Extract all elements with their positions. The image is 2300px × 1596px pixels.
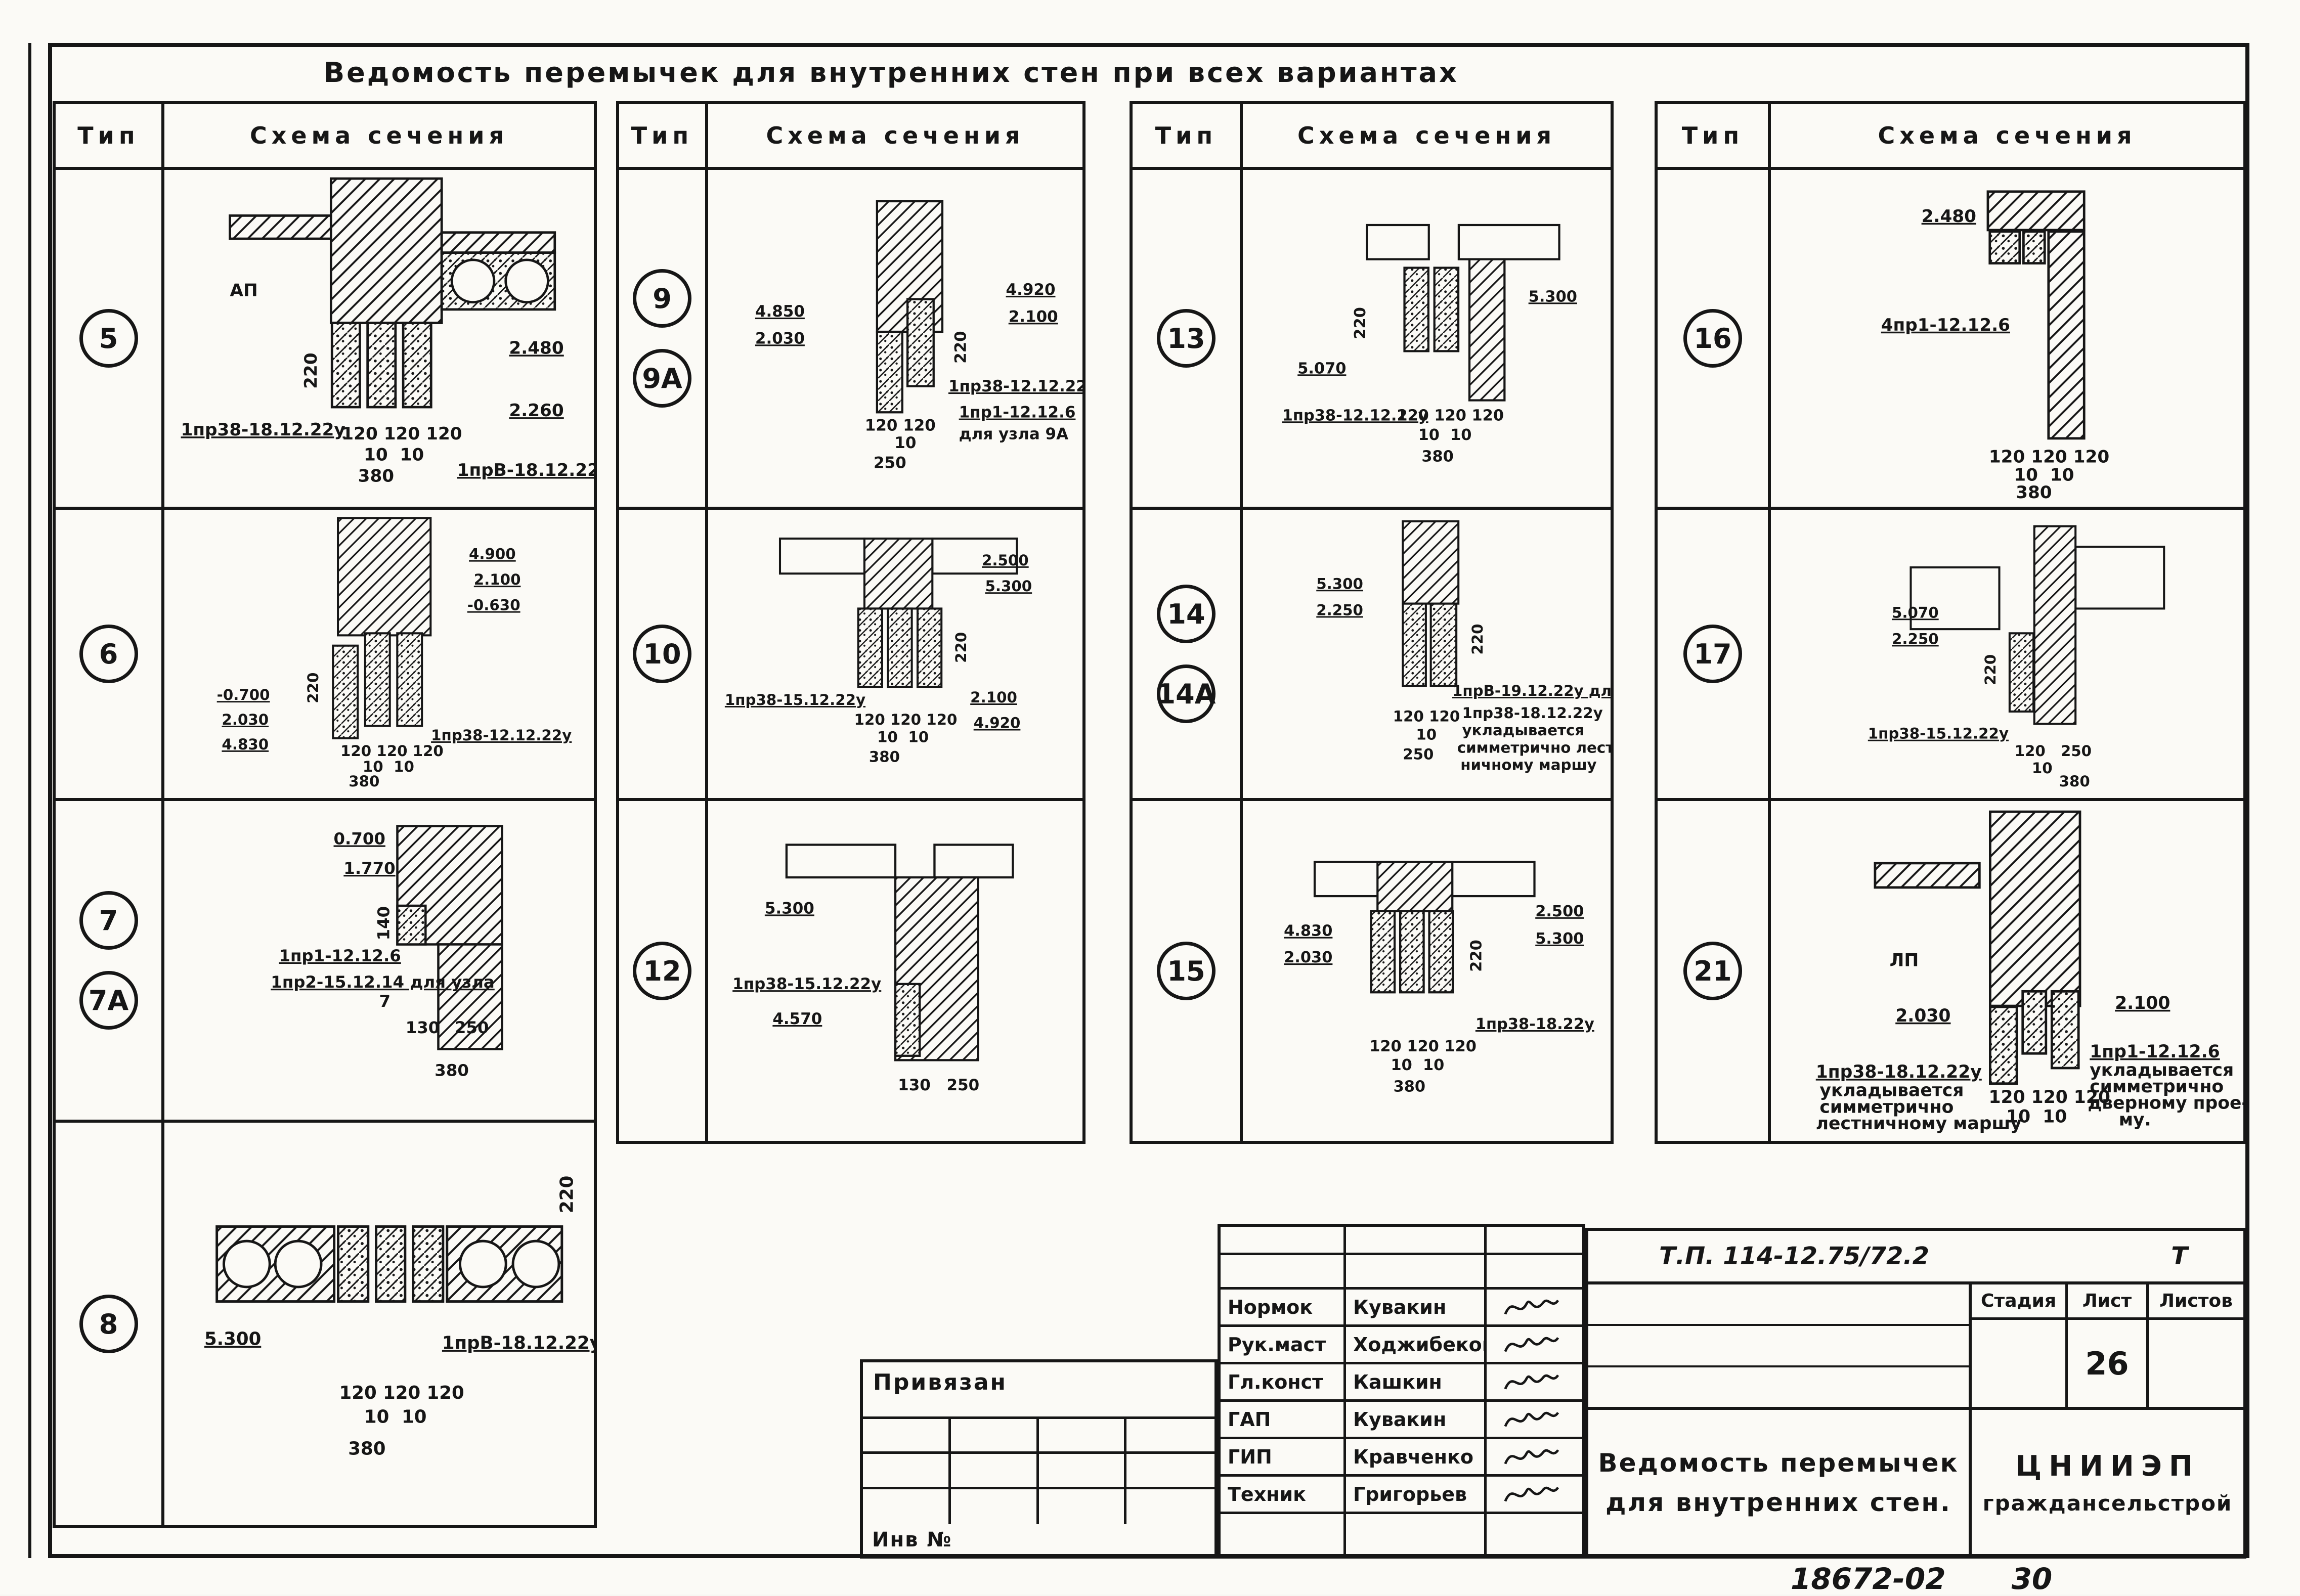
dimension-annotation: 10 (894, 434, 916, 452)
lintel-block (1400, 911, 1423, 993)
grid-cell (1126, 1454, 1214, 1489)
section-scheme-drawing: ЛП2.0302.1001пр38-18.12.22уукладываетсяс… (1771, 801, 2243, 1141)
dimension-annotation: 380 (869, 748, 900, 765)
dimension-annotation: 5.300 (1316, 575, 1363, 592)
dimension-annotation: 4пр1-12.12.6 (1881, 315, 2010, 335)
grid-cell (1126, 1419, 1214, 1454)
type-number-badge: 14 (1157, 585, 1216, 643)
dimension-annotation: ЛП (1890, 950, 1919, 970)
signature (1494, 1405, 1570, 1434)
wall-hatch (1377, 862, 1452, 911)
dimension-annotation: 10 10 (2006, 1107, 2067, 1127)
lintel-block (376, 1226, 405, 1301)
doc-title-line-2: для внутренних стен. (1605, 1488, 1951, 1517)
dimension-annotation: 220 (1982, 654, 1999, 685)
type-number-badge: 21 (1683, 942, 1742, 1000)
type-number-badge: 16 (1683, 309, 1742, 368)
dimension-annotation: 220 (1469, 624, 1486, 654)
dimension-annotation: 120 120 120 (340, 742, 444, 760)
dimension-annotation: 1.770 (343, 859, 395, 878)
grid-cell (863, 1454, 951, 1489)
dimension-annotation: 1пр1-12.12.6 (959, 404, 1076, 422)
schema-cell-6: 4.9002.100-0.6302201пр38-12.12.22у-0.700… (164, 510, 594, 801)
inventory-number-label: Инв № (863, 1524, 1214, 1556)
dimension-annotation: 250 (455, 1018, 489, 1037)
signature-cell (1487, 1402, 1582, 1439)
lintel-block (403, 323, 431, 408)
wall-hatch (1403, 521, 1458, 604)
wall-hatch (1469, 259, 1504, 401)
dimension-annotation: 220 (301, 352, 321, 389)
footnote-number: 18672-02 (1791, 1562, 1946, 1596)
type-number-badge: 7А (79, 971, 138, 1030)
dimension-annotation: 2.030 (1284, 949, 1332, 966)
dimension-annotation: 2.100 (2115, 993, 2170, 1013)
schema-cell-8: 2205.3001прВ-18.12.22у120 120 12010 1038… (164, 1123, 594, 1525)
type-number-badge: 13 (1157, 309, 1216, 368)
hollow-core-void (224, 1241, 270, 1287)
empty-row (1588, 1367, 1969, 1407)
tip-cell-17: 17 (1658, 510, 1771, 801)
section-scheme-drawing: 2205.3005.0701пр38-12.12.22у120 120 1201… (1243, 170, 1611, 507)
dimension-annotation: лестничному маршу (1816, 1114, 2022, 1134)
dimension-annotation: 4.850 (755, 302, 805, 321)
type-number-badge: 15 (1157, 942, 1216, 1000)
role-cell: Рук.маст (1221, 1327, 1346, 1364)
dimension-annotation: 10 10 (364, 1406, 427, 1427)
schema-cell-7: 0.7001.7701401пр1-12.12.61пр2-15.12.14 д… (164, 801, 594, 1123)
signature-cell (1487, 1327, 1582, 1364)
dimension-annotation: ничному маршу (1460, 757, 1596, 774)
empty-rows (1588, 1284, 1972, 1407)
dimension-annotation: 2.260 (509, 401, 563, 421)
dimension-annotation: 10 (1416, 726, 1437, 743)
empty-cell (1221, 1255, 1346, 1290)
type-number-badge: 9А (633, 349, 691, 408)
dimension-annotation: 2.030 (755, 329, 805, 347)
dimension-annotation: 5.300 (1529, 288, 1577, 305)
wall-hatch (338, 518, 430, 635)
lintel-block (895, 984, 920, 1056)
title-block: Т.П. 114-12.75/72.2 Т Стадия Лист Листов… (1585, 1228, 2246, 1559)
lintel-block (877, 332, 902, 412)
slab-outline (934, 845, 1013, 877)
type-number-badge: 10 (633, 625, 691, 683)
dimension-annotation: 220 (1352, 307, 1369, 339)
dimension-annotation: укладывается (1462, 722, 1585, 739)
tip-cell-12: 12 (619, 801, 708, 1141)
organization-line-1: ЦНИИЭП (2015, 1450, 2200, 1483)
dimension-annotation: 380 (435, 1061, 469, 1080)
dimension-annotation: 10 10 (1391, 1056, 1444, 1074)
header-schema: Схема сечения (164, 104, 594, 170)
lintel-block (2010, 633, 2033, 712)
dimension-annotation: 140 (374, 906, 393, 941)
header-schema: Схема сечения (708, 104, 1082, 170)
header-schema: Схема сечения (1243, 104, 1611, 170)
signature-cell (1487, 1290, 1582, 1327)
name-cell: Кувакин (1346, 1402, 1487, 1439)
lintel-block (398, 906, 426, 945)
dimension-annotation: 2.100 (474, 571, 521, 588)
dimension-annotation: му. (2119, 1110, 2151, 1130)
signature (1494, 1367, 1570, 1397)
organization-line-2: граждансельстрой (1983, 1491, 2233, 1516)
lintel-block (368, 323, 396, 408)
dimension-annotation: 4.900 (469, 546, 516, 563)
tip-cell-21: 21 (1658, 801, 1771, 1141)
hollow-core-void (513, 1241, 559, 1287)
drawing-sheet: Ведомость перемычек для внутренних стен … (0, 0, 2300, 1594)
dimension-annotation: 5.300 (1535, 930, 1584, 948)
dimension-annotation: 1пр38-18.12.22у (1816, 1062, 1982, 1082)
dimension-annotation: 120 120 120 (1369, 1038, 1477, 1055)
dimension-annotation: 4.920 (974, 715, 1021, 732)
dimension-annotation: 120 120 (865, 416, 936, 434)
tip-cell-8: 8 (56, 1123, 164, 1525)
lintel-block (907, 299, 934, 386)
dimension-annotation: 10 10 (877, 728, 929, 745)
empty-cell (1487, 1514, 1582, 1556)
lintel-block (1371, 911, 1395, 993)
type-number-badge: 7 (79, 891, 138, 950)
signature-cell (1487, 1364, 1582, 1402)
lintel-block (338, 1226, 368, 1301)
wall-hatch (442, 233, 555, 253)
dimension-annotation: 380 (1421, 448, 1454, 465)
dimension-annotation: 1пр38-15.12.22у (732, 975, 881, 993)
header-tip: Тип (1658, 104, 1771, 170)
signature (1494, 1480, 1570, 1509)
lintel-table-group-3: Тип Схема сечения 13 2205.3005.0701пр38-… (1130, 101, 1614, 1144)
lintel-block (1429, 911, 1453, 993)
sheets-header: Листов (2149, 1284, 2243, 1317)
stage-letter: Т (2171, 1242, 2188, 1270)
name-cell: Кравченко (1346, 1439, 1487, 1477)
section-scheme-drawing: 4.8302.0302.5005.3002201пр38-18.22у120 1… (1243, 801, 1611, 1141)
dimension-annotation: 120 120 120 (854, 711, 958, 728)
dimension-annotation: 4.830 (1284, 922, 1332, 940)
header-schema: Схема сечения (1771, 104, 2243, 170)
doc-title-line-1: Ведомость перемычек (1598, 1448, 1959, 1478)
signature (1494, 1330, 1570, 1359)
empty-cell (1221, 1514, 1346, 1556)
schema-cell-12: 5.3001пр38-15.12.22у4.570130250 (708, 801, 1082, 1141)
lintel-block (1990, 232, 2020, 263)
signature-cell (1487, 1477, 1582, 1514)
dimension-annotation: 220 (951, 331, 970, 364)
lintel-block (332, 323, 360, 408)
dimension-annotation: 4.570 (772, 1010, 822, 1028)
dimension-annotation: 1прВ-18.12.22у (442, 1333, 594, 1353)
dimension-annotation: 220 (1468, 940, 1486, 972)
lintel-block (1435, 268, 1458, 351)
schema-cell-10: 2.5005.3002201пр38-15.12.22у2.1004.92012… (708, 510, 1082, 801)
dimension-annotation: 2.480 (1922, 206, 1976, 227)
empty-cell (1487, 1227, 1582, 1255)
tip-cell-5: 5 (56, 170, 164, 510)
sheet-header: Лист (2068, 1284, 2149, 1317)
grid-cell (951, 1419, 1039, 1454)
dimension-annotation: 5.300 (765, 899, 814, 917)
dimension-annotation: -0.630 (467, 597, 520, 614)
footnote-extra: 30 (2012, 1562, 2053, 1596)
schema-cell-5: АП2201пр38-18.12.22у2.4802.260120 120 12… (164, 170, 594, 510)
wall-hatch (331, 179, 442, 323)
dimension-annotation: 120 120 (1393, 708, 1460, 725)
dimension-annotation: 250 (947, 1076, 980, 1094)
dimension-annotation: 1пр38-18.22у (1476, 1015, 1594, 1033)
lintel-block (918, 608, 941, 687)
section-scheme-drawing: 2.5005.3002201пр38-15.12.22у2.1004.92012… (708, 510, 1082, 798)
wall-hatch (230, 215, 331, 239)
wall-hatch (1875, 863, 1979, 888)
dimension-annotation: 2.500 (982, 552, 1029, 569)
tip-cell-7: 77А (56, 801, 164, 1123)
lintel-block (365, 633, 390, 726)
lintel-block (1431, 604, 1456, 686)
lintel-block (413, 1226, 443, 1301)
slab-outline (1459, 225, 1559, 259)
empty-cell (1221, 1227, 1346, 1255)
dimension-annotation: 250 (2061, 742, 2092, 760)
dimension-annotation: 1прВ-19.12.22у для 14а (1452, 682, 1611, 699)
dimension-annotation: 1пр38-15.12.22у (725, 691, 865, 708)
wall-hatch (2034, 526, 2075, 724)
dimension-annotation: 1пр38-12.12.22у (948, 377, 1082, 395)
name-cell: Кашкин (1346, 1364, 1487, 1402)
dimension-annotation: 380 (358, 466, 395, 486)
dimension-annotation: 2.500 (1535, 903, 1584, 920)
type-project-number: Т.П. 114-12.75/72.2 (1659, 1242, 1929, 1270)
stage-header: Стадия (1972, 1284, 2068, 1317)
dimension-annotation: 130 (406, 1018, 440, 1037)
schema-cell-21: ЛП2.0302.1001пр38-18.12.22уукладываетсяс… (1771, 801, 2243, 1141)
section-scheme-drawing: АП2201пр38-18.12.22у2.4802.260120 120 12… (164, 170, 594, 507)
dimension-annotation: 1пр38-12.12.22у (431, 727, 572, 744)
dimension-annotation: 1пр1-12.12.6 (2090, 1042, 2220, 1062)
empty-cell (1346, 1255, 1487, 1290)
type-number-badge: 5 (79, 309, 138, 368)
schema-cell-16: 2.4804пр1-12.12.6120 120 12010 10380 (1771, 170, 2243, 510)
lintel-table-group-2: Тип Схема сечения 99А 4.8502.0302204.920… (616, 101, 1086, 1144)
dimension-annotation: 1пр1-12.12.6 (279, 946, 401, 965)
dimension-annotation: -0.700 (217, 686, 270, 703)
sheet-title: Ведомость перемычек для внутренних стен … (324, 57, 1459, 88)
signature (1494, 1442, 1570, 1472)
tip-cell-14: 1414А (1133, 510, 1243, 801)
dimension-annotation: 5.300 (204, 1328, 261, 1349)
grid-cell (951, 1489, 1039, 1524)
grid-cell (863, 1489, 951, 1524)
wall-hatch (1990, 812, 2080, 1006)
dimension-annotation: дверному прое- (2088, 1093, 2243, 1114)
empty-cell (1346, 1227, 1487, 1255)
hollow-core-void (460, 1241, 506, 1287)
type-number-badge: 12 (633, 942, 691, 1000)
wall-hatch (864, 539, 932, 608)
dimension-annotation: 120 (2015, 742, 2046, 760)
grid-cell (863, 1419, 951, 1454)
schema-cell-15: 4.8302.0302.5005.3002201пр38-18.22у120 1… (1243, 801, 1611, 1141)
name-cell: Кувакин (1346, 1290, 1487, 1327)
lintel-table-group-4: Тип Схема сечения 16 2.4804пр1-12.12.612… (1655, 101, 2246, 1144)
role-cell: Нормок (1221, 1290, 1346, 1327)
lintel-block (888, 608, 912, 687)
dimension-annotation: 4.830 (222, 736, 269, 753)
role-cell: ГИП (1221, 1439, 1346, 1477)
dimension-annotation: 4.920 (1006, 281, 1056, 299)
wall-hatch (2049, 232, 2084, 438)
slab-outline (780, 539, 864, 573)
tip-cell-9: 99А (619, 170, 708, 510)
dimension-annotation: 120 120 120 (1989, 1087, 2110, 1107)
dimension-annotation: для узла 9А (959, 425, 1068, 444)
dimension-annotation: 120 120 120 (339, 1383, 464, 1403)
schema-cell-9: 4.8502.0302204.9202.1001пр38-12.12.22у1п… (708, 170, 1082, 510)
lintel-block (2052, 991, 2078, 1068)
schema-cell-13: 2205.3005.0701пр38-12.12.22у120 120 1201… (1243, 170, 1611, 510)
tip-cell-15: 15 (1133, 801, 1243, 1141)
empty-row (1588, 1326, 1969, 1367)
wall-hatch (1988, 192, 2084, 230)
type-number-badge: 14А (1157, 664, 1216, 723)
lintel-block (333, 646, 358, 738)
section-scheme-drawing: 2.4804пр1-12.12.6120 120 12010 10380 (1771, 170, 2243, 507)
dimension-annotation: 2.100 (1009, 307, 1058, 326)
grid-cell (1039, 1454, 1127, 1489)
section-scheme-drawing: 5.3001пр38-15.12.22у4.570130250 (708, 801, 1082, 1141)
role-cell: Техник (1221, 1477, 1346, 1514)
dimension-annotation: 220 (557, 1176, 578, 1213)
sheet-number: 26 (2068, 1320, 2149, 1407)
schema-cell-17: 5.0702.2502201пр38-15.12.22у12025010380 (1771, 510, 2243, 801)
lintel-block (1405, 268, 1428, 351)
tip-cell-13: 13 (1133, 170, 1243, 510)
type-number-badge: 9 (633, 269, 691, 328)
dimension-annotation: 5.070 (1297, 360, 1346, 377)
dimension-annotation: 2.480 (509, 338, 563, 358)
section-scheme-drawing: 4.8502.0302204.9202.1001пр38-12.12.22у1п… (708, 170, 1082, 507)
section-scheme-drawing: 2205.3001прВ-18.12.22у120 120 12010 1038… (164, 1123, 594, 1525)
binding-block: Привязан Инв № (860, 1359, 1218, 1559)
header-tip: Тип (619, 104, 708, 170)
privyazan-label: Привязан (863, 1362, 1214, 1419)
lintel-table-group-1: Тип Схема сечения 5 АП2201пр38-18.12.22у… (53, 101, 597, 1528)
dimension-annotation: 2.250 (1892, 630, 1939, 647)
tip-cell-16: 16 (1658, 170, 1771, 510)
signature-table: Нормок Кувакин Рук.маст Ходжибеков Гл.ко… (1218, 1224, 1585, 1559)
section-scheme-drawing: 4.9002.100-0.6302201пр38-12.12.22у-0.700… (164, 510, 594, 798)
dimension-annotation: 0.700 (334, 829, 385, 849)
hollow-core-void (506, 260, 548, 302)
dimension-annotation: 380 (2016, 482, 2052, 503)
section-scheme-drawing: 5.3002.2502201прВ-19.12.22у для 14а1пр38… (1243, 510, 1611, 798)
lintel-block (1990, 1007, 2017, 1084)
dimension-annotation: 10 (2032, 760, 2053, 777)
type-number-badge: 6 (79, 625, 138, 683)
empty-row (1588, 1284, 1969, 1326)
lintel-block (2023, 232, 2045, 263)
dimension-annotation: 2.250 (1316, 601, 1363, 618)
section-scheme-drawing: 5.0702.2502201пр38-15.12.22у12025010380 (1771, 510, 2243, 798)
header-tip: Тип (1133, 104, 1243, 170)
dimension-annotation: 130 (898, 1076, 931, 1094)
stage-value (1972, 1320, 2068, 1407)
dimension-annotation: 7 (379, 992, 391, 1011)
lintel-block (1403, 604, 1426, 686)
dimension-annotation: 120 120 120 (1397, 407, 1504, 424)
slab-outline (2075, 547, 2164, 608)
slab-outline (1367, 225, 1429, 259)
empty-cell (1487, 1255, 1582, 1290)
dimension-annotation: 1пр38-18.12.22у (1462, 704, 1603, 722)
lintel-block (858, 608, 882, 687)
name-cell: Ходжибеков (1346, 1327, 1487, 1364)
grid-cell (951, 1454, 1039, 1489)
tip-cell-6: 6 (56, 510, 164, 801)
slab-outline (787, 845, 895, 877)
binding-margin-line (28, 43, 31, 1558)
hollow-core-void (452, 260, 494, 302)
dimension-annotation: 120 120 120 (341, 424, 462, 444)
name-cell: Григорьев (1346, 1477, 1487, 1514)
sheets-value (2149, 1320, 2243, 1407)
header-tip: Тип (56, 104, 164, 170)
dimension-annotation: 1пр2-15.12.14 для узла (271, 972, 494, 992)
type-number-badge: 17 (1683, 625, 1742, 683)
lintel-block (397, 633, 422, 726)
dimension-annotation: 220 (952, 632, 970, 663)
signature (1494, 1293, 1570, 1322)
section-scheme-drawing: 0.7001.7701401пр1-12.12.61пр2-15.12.14 д… (164, 801, 594, 1120)
schema-cell-14: 5.3002.2502201прВ-19.12.22у для 14а1пр38… (1243, 510, 1611, 801)
dimension-annotation: 1пр38-18.12.22у (181, 420, 345, 440)
handwritten-footnote: 18672-02 30 (1791, 1562, 2052, 1596)
dimension-annotation: АП (230, 280, 258, 300)
dimension-annotation: 1пр38-15.12.22у (1868, 725, 2009, 742)
dimension-annotation: 2.030 (1895, 1006, 1950, 1026)
dimension-annotation: симметрично лест- (1457, 739, 1611, 756)
dimension-annotation: 5.300 (985, 578, 1032, 595)
dimension-annotation: 380 (2059, 773, 2090, 790)
grid-cell (1126, 1489, 1214, 1524)
lintel-block (2023, 991, 2046, 1053)
dimension-annotation: 10 10 (364, 445, 424, 465)
dimension-annotation: 2.030 (222, 711, 269, 728)
type-number-badge: 8 (79, 1295, 138, 1353)
dimension-annotation: 120 120 120 (1989, 447, 2109, 467)
role-cell: Гл.конст (1221, 1364, 1346, 1402)
dimension-annotation: 250 (874, 454, 906, 472)
signature-cell (1487, 1439, 1582, 1477)
dimension-annotation: 380 (348, 1439, 385, 1459)
dimension-annotation: 10 10 (1418, 426, 1472, 444)
dimension-annotation: 250 (1403, 745, 1434, 763)
tip-cell-10: 10 (619, 510, 708, 801)
dimension-annotation: 1прВ-18.12.22у (457, 460, 594, 480)
dimension-annotation: 380 (349, 773, 379, 790)
grid-cell (1039, 1489, 1127, 1524)
dimension-annotation: 5.070 (1892, 604, 1939, 621)
grid-cell (1039, 1419, 1127, 1454)
revision-grid (863, 1419, 1214, 1524)
empty-cell (1346, 1514, 1487, 1556)
hollow-core-void (275, 1241, 321, 1287)
dimension-annotation: 220 (305, 673, 322, 703)
dimension-annotation: 2.100 (970, 689, 1017, 706)
dimension-annotation: 380 (1394, 1078, 1426, 1095)
